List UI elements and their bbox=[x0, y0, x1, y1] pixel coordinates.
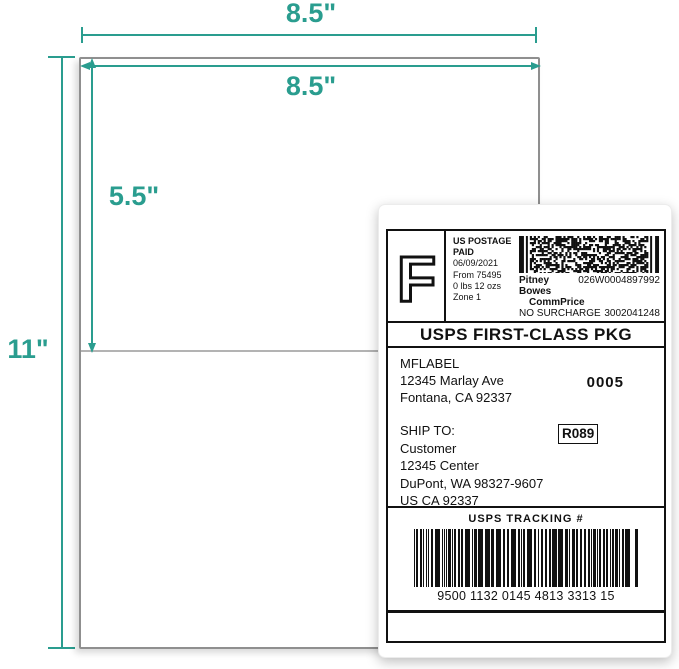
shipping-label-card: F US POSTAGE PAID 06/09/2021 From 75495 … bbox=[378, 204, 672, 658]
postage-zone: Zone 1 bbox=[453, 292, 519, 303]
product-diagram: 8.5" 11" 8.5" 5.5" F bbox=[0, 0, 679, 669]
sender-city: Fontana, CA 92337 bbox=[400, 389, 512, 406]
address-section: MFLABEL 12345 Marlay Ave Fontana, CA 923… bbox=[388, 348, 664, 506]
sheet-width-dimension-line bbox=[82, 34, 537, 36]
postage-details: US POSTAGE PAID 06/09/2021 From 75495 0 … bbox=[453, 236, 519, 319]
label-height-dimension-line bbox=[91, 64, 93, 345]
meter-row: Pitney Bowes 026W0004897992 bbox=[519, 275, 660, 297]
label-width-dimension-line bbox=[88, 65, 534, 67]
tracking-title: USPS TRACKING # bbox=[388, 508, 664, 525]
label-width-dimension-label: 8.5" bbox=[248, 71, 374, 102]
recipient-street: 12345 Center bbox=[400, 457, 543, 475]
ship-to-address: SHIP TO: Customer 12345 Center DuPont, W… bbox=[400, 422, 543, 510]
sheet-width-dimension-label: 8.5" bbox=[248, 0, 374, 29]
carrier-name: Pitney Bowes bbox=[519, 275, 578, 297]
meter-number: 026W0004897992 bbox=[578, 275, 660, 297]
tracking-section: USPS TRACKING # 9500 1132 0145 4813 3313… bbox=[388, 506, 664, 610]
svg-text:F: F bbox=[397, 245, 436, 307]
postage-date: 06/09/2021 bbox=[453, 258, 519, 269]
shipping-label: F US POSTAGE PAID 06/09/2021 From 75495 … bbox=[386, 229, 666, 643]
return-address: MFLABEL 12345 Marlay Ave Fontana, CA 923… bbox=[400, 355, 512, 406]
batch-number: 0005 bbox=[587, 374, 624, 391]
dimension-tick bbox=[48, 647, 75, 649]
outlined-f-glyph: F bbox=[394, 245, 438, 307]
dimension-tick bbox=[535, 27, 537, 43]
arrow-right-icon bbox=[531, 62, 541, 70]
arrow-up-icon bbox=[88, 58, 96, 68]
sheet-height-dimension-label: 11" bbox=[0, 334, 56, 365]
postage-class-letter: F bbox=[388, 231, 446, 321]
tracking-number: 9500 1132 0145 4813 3313 15 bbox=[388, 589, 664, 603]
postage-details-area: US POSTAGE PAID 06/09/2021 From 75495 0 … bbox=[446, 231, 664, 321]
route-code-badge: R089 bbox=[558, 424, 598, 444]
sheet-height-dimension-line bbox=[61, 57, 63, 649]
dimension-tick bbox=[48, 56, 75, 58]
tracking-barcode bbox=[414, 529, 638, 587]
recipient-country: US CA 92337 bbox=[400, 492, 543, 510]
postage-origin: From 75495 bbox=[453, 270, 519, 281]
postage-2d-barcode bbox=[519, 236, 660, 273]
postage-header: F US POSTAGE PAID 06/09/2021 From 75495 … bbox=[388, 231, 664, 321]
recipient-city: DuPont, WA 98327-9607 bbox=[400, 475, 543, 493]
label-height-dimension-label: 5.5" bbox=[98, 181, 170, 212]
surcharge-row: NO SURCHARGE 3002041248 bbox=[519, 308, 660, 319]
sender-name: MFLABEL bbox=[400, 355, 512, 372]
rate-name: CommPrice bbox=[529, 298, 660, 308]
postage-line: US POSTAGE bbox=[453, 236, 519, 247]
ship-to-label: SHIP TO: bbox=[400, 422, 543, 440]
postage-line: PAID bbox=[453, 247, 519, 258]
service-class-banner: USPS FIRST-CLASS PKG bbox=[388, 321, 664, 348]
sender-street: 12345 Marlay Ave bbox=[400, 372, 512, 389]
arrow-down-icon bbox=[88, 343, 96, 353]
label-footer-blank bbox=[388, 610, 664, 641]
serial-number: 3002041248 bbox=[604, 308, 660, 319]
dimension-tick bbox=[81, 27, 83, 43]
recipient-name: Customer bbox=[400, 440, 543, 458]
surcharge-label: NO SURCHARGE bbox=[519, 308, 601, 319]
meter-area: Pitney Bowes 026W0004897992 CommPrice NO… bbox=[519, 236, 660, 319]
postage-weight: 0 lbs 12 ozs bbox=[453, 281, 519, 292]
